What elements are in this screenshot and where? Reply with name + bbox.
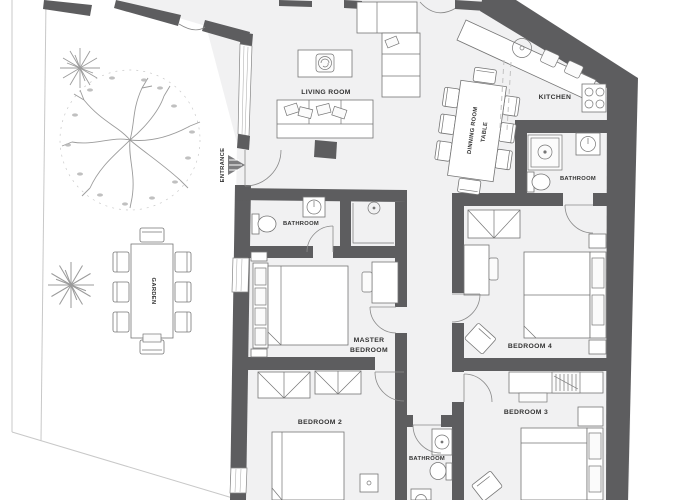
garden-label: GARDEN [150,278,156,305]
sofa [277,100,373,138]
sink-icon [576,133,600,155]
stove-icon [582,84,606,112]
master-bedroom-label-line1: MASTER [354,337,385,344]
garden: GARDEN [48,48,200,354]
corner-sofa [382,33,420,97]
tree-icon [60,70,200,210]
nightstand [578,407,603,426]
nightstand [589,340,606,354]
toilet-icon [430,463,452,481]
entrance-label: ENTRANCE [220,148,226,183]
floor-plan: GARDEN [0,0,700,500]
bush-icon [48,262,94,308]
washing-machine-icon [411,489,431,500]
bed [272,432,344,500]
shower-icon [528,135,562,170]
bathroom-label: BATHROOM [560,176,596,182]
side-table [360,474,378,492]
tv-cabinet [357,2,417,33]
kitchen-label: KITCHEN [539,94,572,101]
sink-icon [432,429,452,455]
bedroom-4-label: BEDROOM 4 [508,343,552,350]
window [230,468,247,493]
bed [524,252,606,338]
living-room-label: LIVING ROOM [301,89,351,96]
nightstand [589,234,606,248]
bush-icon [60,48,100,88]
bed [521,428,603,500]
bedroom-3-label: BEDROOM 3 [504,409,548,416]
garden-dining-set: GARDEN [113,228,191,354]
master-bedroom-label-line2: BEDROOM [350,347,388,354]
sink-icon [303,197,325,217]
floor-plan-drawing: GARDEN [0,0,700,500]
wardrobe [468,210,520,238]
coffee-table [298,50,352,77]
bathroom-label: BATHROOM [283,221,319,227]
site-boundary [12,0,236,499]
bedroom-2-label: BEDROOM 2 [298,419,342,426]
bathroom-label: BATHROOM [409,456,445,462]
window [232,258,249,292]
bed [251,252,348,357]
wardrobes [258,371,361,398]
